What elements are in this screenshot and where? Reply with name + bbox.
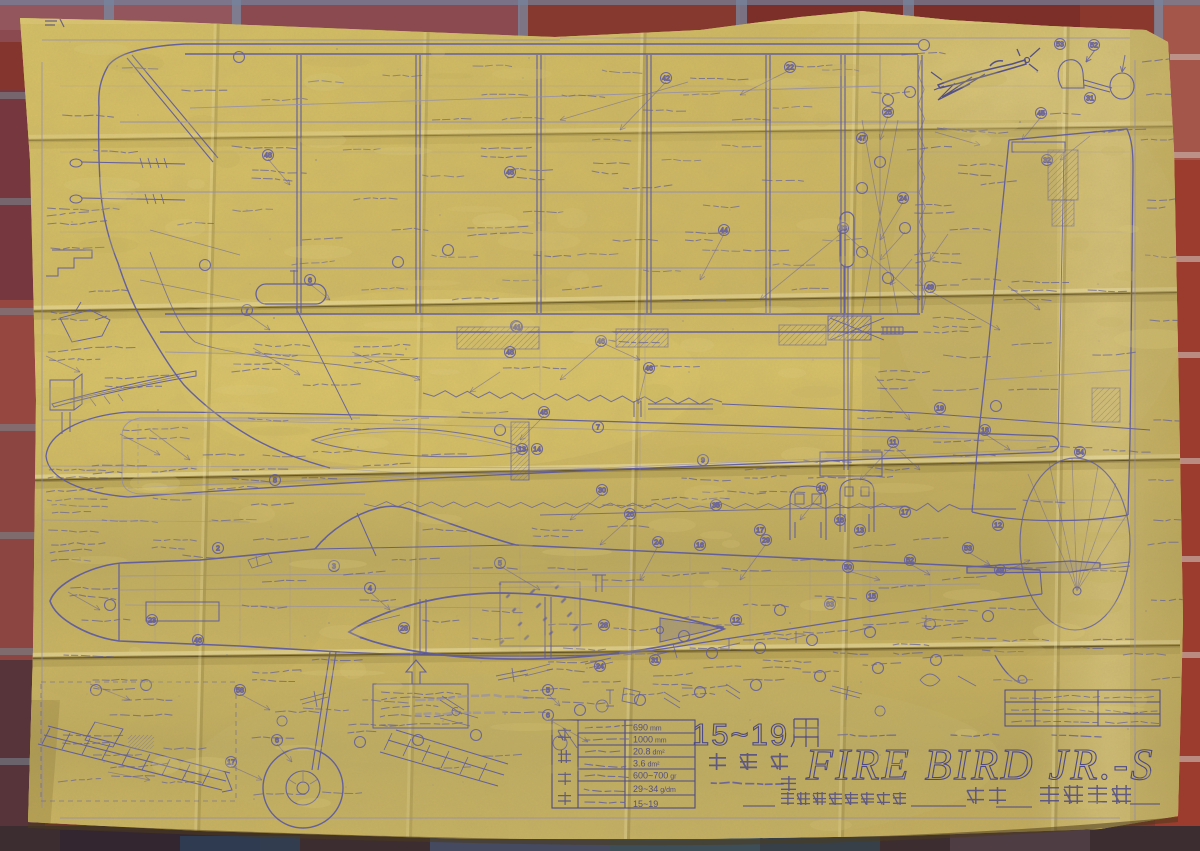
svg-text:44: 44 [720, 228, 728, 235]
svg-text:52: 52 [906, 558, 914, 565]
svg-text:47: 47 [858, 136, 866, 143]
svg-text:54: 54 [1076, 450, 1084, 457]
svg-text:17: 17 [756, 528, 764, 535]
svg-text:12: 12 [994, 523, 1002, 530]
svg-text:50: 50 [844, 565, 852, 572]
svg-text:31: 31 [1086, 96, 1094, 103]
svg-text:16: 16 [836, 518, 844, 525]
svg-text:15~19: 15~19 [692, 717, 789, 752]
svg-text:29: 29 [762, 538, 770, 545]
svg-text:5: 5 [546, 688, 550, 695]
svg-text:48: 48 [264, 153, 272, 160]
svg-text:19: 19 [936, 406, 944, 413]
svg-text:12: 12 [732, 618, 740, 625]
svg-text:10: 10 [818, 486, 826, 493]
svg-text:46: 46 [645, 366, 653, 373]
svg-text:14: 14 [533, 447, 541, 454]
svg-text:58: 58 [236, 688, 244, 695]
svg-text:45: 45 [540, 410, 548, 417]
svg-text:53: 53 [1056, 42, 1064, 49]
svg-text:6: 6 [308, 278, 312, 285]
svg-text:52: 52 [1090, 43, 1098, 50]
svg-text:24: 24 [899, 196, 907, 203]
svg-text:4: 4 [368, 586, 372, 593]
svg-text:22: 22 [786, 65, 794, 72]
svg-text:8: 8 [273, 478, 277, 485]
svg-text:49: 49 [926, 285, 934, 292]
svg-text:48: 48 [506, 170, 514, 177]
svg-text:42: 42 [662, 76, 670, 83]
svg-text:18: 18 [981, 428, 989, 435]
svg-text:15~19: 15~19 [633, 799, 658, 809]
svg-text:46: 46 [194, 638, 202, 645]
svg-text:23: 23 [148, 618, 156, 625]
svg-text:26: 26 [626, 512, 634, 519]
svg-text:17: 17 [901, 510, 909, 517]
svg-text:25: 25 [884, 110, 892, 117]
svg-text:6: 6 [275, 738, 279, 745]
svg-text:24: 24 [654, 540, 662, 547]
svg-text:28: 28 [600, 623, 608, 630]
svg-text:16: 16 [696, 543, 704, 550]
svg-text:53: 53 [964, 546, 972, 553]
svg-text:15: 15 [868, 594, 876, 601]
svg-text:FIRE BIRD JR.-S: FIRE BIRD JR.-S [805, 740, 1155, 789]
svg-text:48: 48 [506, 350, 514, 357]
svg-text:31: 31 [651, 658, 659, 665]
svg-text:45: 45 [1037, 111, 1045, 118]
svg-text:35: 35 [712, 503, 720, 510]
svg-text:7: 7 [596, 425, 600, 432]
svg-text:28: 28 [400, 626, 408, 633]
svg-text:13: 13 [856, 528, 864, 535]
svg-text:30: 30 [598, 488, 606, 495]
svg-text:13: 13 [518, 447, 526, 454]
svg-text:2: 2 [216, 546, 220, 553]
svg-text:6: 6 [546, 713, 550, 720]
